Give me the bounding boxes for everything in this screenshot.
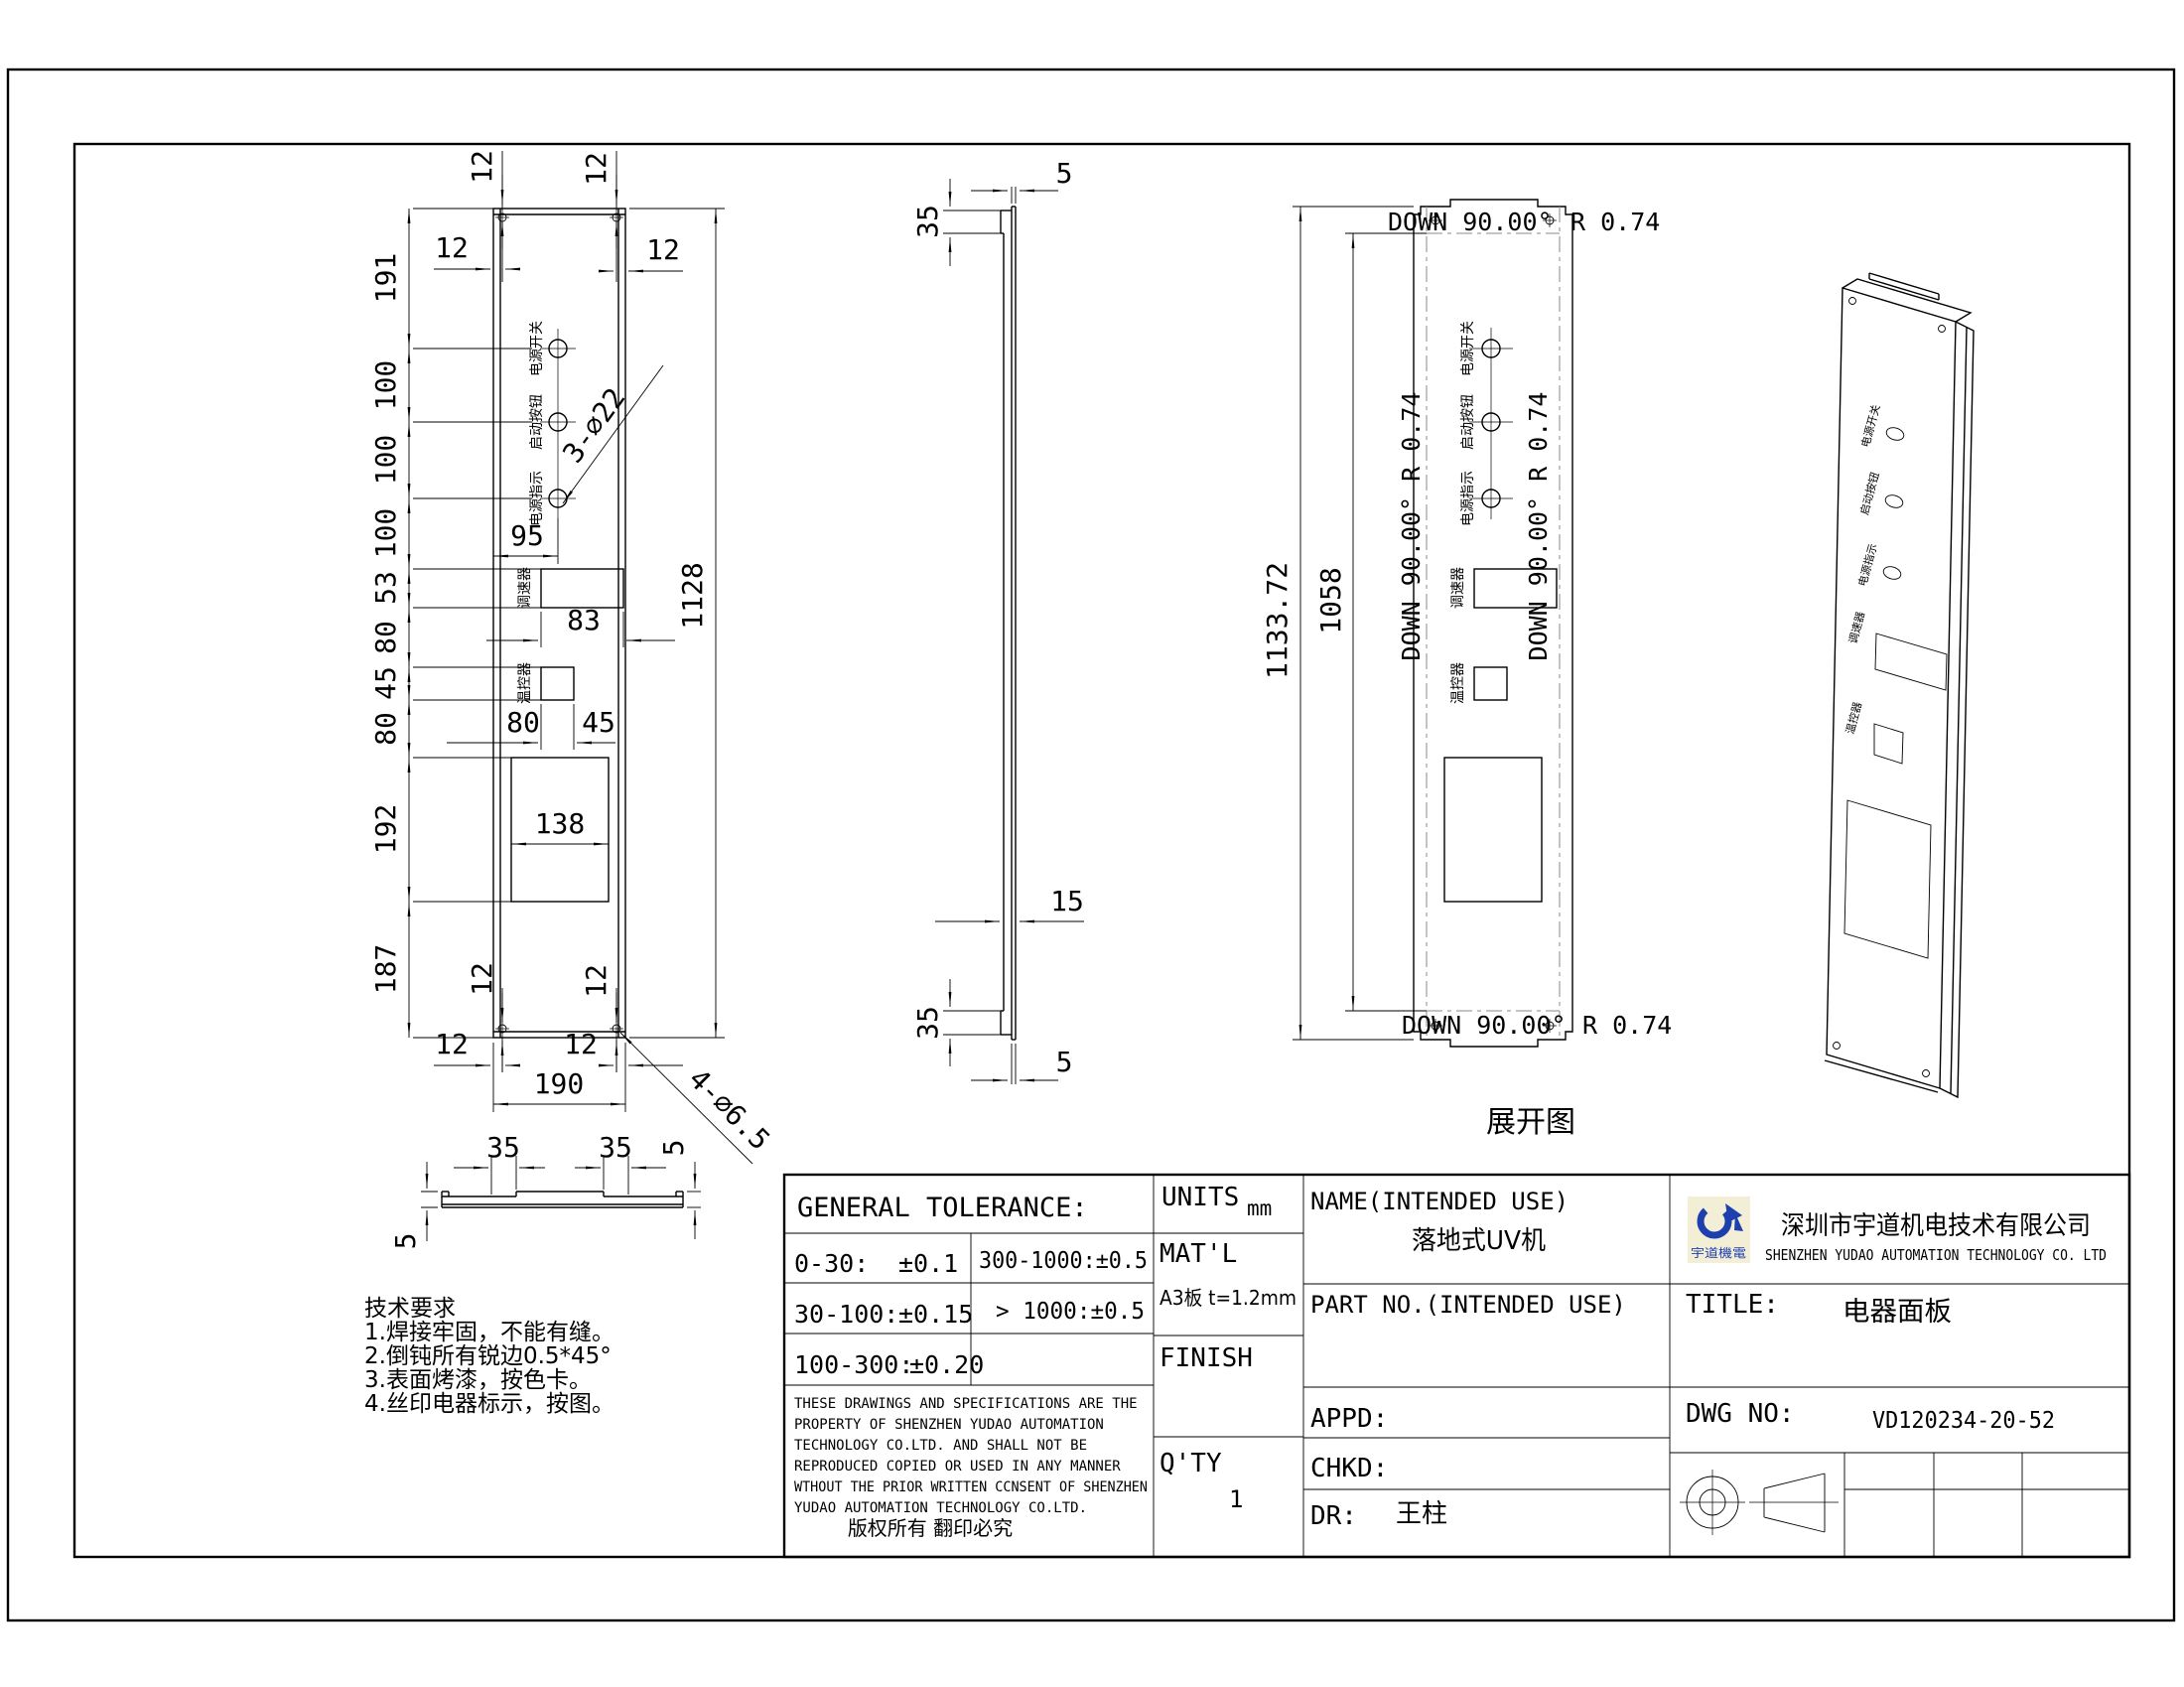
bottom-view: 35 35 5 5 [389, 1131, 701, 1249]
dim-label: 1058 [1314, 567, 1347, 633]
dim-label: 138 [535, 807, 586, 840]
dim-label: 80 [369, 712, 402, 746]
general-tolerance-heading: GENERAL TOLERANCE: [797, 1193, 1088, 1223]
dim-label: 187 [369, 944, 402, 995]
dim-label: 35 [486, 1131, 520, 1164]
disclaimer-line: PROPERTY OF SHENZHEN YUDAO AUTOMATION [794, 1417, 1104, 1433]
title-block: GENERAL TOLERANCE: 0-30: ±0.1 300-1000:±… [784, 1175, 2129, 1557]
dim-label: 83 [567, 604, 601, 636]
dr-value: 王柱 [1396, 1499, 1447, 1529]
part-no-label: PART NO.(INTENDED USE) [1310, 1291, 1626, 1319]
dim-label: 95 [510, 519, 544, 552]
tolerance-range: 300-1000:±0.5 [979, 1248, 1148, 1274]
dim-label: 12 [435, 231, 469, 264]
disclaimer-line: REPRODUCED COPIED OR USED IN ANY MANNER [794, 1459, 1121, 1475]
flat-pattern-caption: 展开图 [1486, 1105, 1575, 1140]
disclaimer-line: THESE DRAWINGS AND SPECIFICATIONS ARE TH… [794, 1396, 1138, 1412]
tech-req-title: 技术要求 [364, 1296, 456, 1322]
tolerance-range: 0-30: [794, 1249, 869, 1278]
copyright-line: 版权所有 翻印必究 [848, 1516, 1013, 1540]
isometric-view: 电源开关 启动按钮 电源指示 调速器 温控器 [1825, 273, 1974, 1097]
hole-callout: 3-∅22 [556, 382, 631, 470]
dim-label: 100 [369, 360, 402, 411]
dim-label: 35 [911, 1006, 944, 1040]
feature-label: 启动按钮 [1460, 394, 1476, 450]
front-view: 电源开关 启动按钮 电源指示 调速器 温控器 191 100 100 [369, 150, 776, 1164]
hole-callout: 4-∅6.5 [682, 1062, 776, 1157]
dim-label: 192 [369, 804, 402, 855]
engineering-drawing-sheet: 电源开关 启动按钮 电源指示 调速器 温控器 191 100 100 [0, 0, 2184, 1687]
tolerance-range: 100-300: [794, 1350, 913, 1379]
company-logo: 宇道機電 [1688, 1196, 1750, 1263]
projection-symbol [1680, 1470, 1839, 1535]
dim-label: 12 [580, 152, 613, 186]
tolerance-value: ±0.1 [898, 1249, 958, 1278]
dim-label: 12 [466, 962, 498, 996]
name-value: 落地式UV机 [1412, 1226, 1546, 1256]
feature-label: 温控器 [1843, 700, 1864, 735]
dim-label: 190 [534, 1067, 585, 1100]
appd-label: APPD: [1310, 1404, 1388, 1434]
bend-note: DOWN 90.00° [1402, 1011, 1567, 1040]
technical-requirements: 技术要求 1.焊接牢固，不能有缝。 2.倒钝所有锐边0.5*45° 3.表面烤漆… [364, 1296, 614, 1417]
bend-radius-note: R 0.74 [1582, 1011, 1672, 1040]
dim-label: 80 [369, 621, 402, 654]
feature-label: 电源指示 [1855, 542, 1880, 588]
title-value: 电器面板 [1843, 1297, 1952, 1328]
dim-label: 5 [657, 1140, 690, 1157]
material-label: MAT'L [1160, 1239, 1237, 1269]
material-value: A3板 t=1.2mm [1160, 1286, 1297, 1310]
dim-label: 5 [389, 1233, 422, 1250]
name-label: NAME(INTENDED USE) [1310, 1188, 1569, 1215]
dim-label: 12 [435, 1028, 469, 1060]
bend-note: DOWN 90.00° [1388, 208, 1553, 236]
feature-label: 调速器 [1450, 567, 1466, 609]
feature-label: 温控器 [1450, 662, 1466, 704]
bend-note: DOWN 90.00° R 0.74 [1397, 392, 1426, 661]
dim-label: 12 [646, 233, 680, 266]
tolerance-range: > 1000:±0.5 [996, 1299, 1145, 1325]
qty-value: 1 [1229, 1485, 1243, 1513]
disclaimer-line: YUDAO AUTOMATION TECHNOLOGY CO.LTD. [794, 1500, 1087, 1516]
dr-label: DR: [1310, 1501, 1357, 1531]
dim-label: 191 [369, 253, 402, 304]
disclaimer-line: TECHNOLOGY CO.LTD. AND SHALL NOT BE [794, 1438, 1087, 1454]
company-name-en: SHENZHEN YUDAO AUTOMATION TECHNOLOGY CO.… [1765, 1246, 2107, 1264]
feature-label: 电源开关 [1858, 403, 1883, 449]
logo-text: 宇道機電 [1691, 1245, 1746, 1260]
flat-pattern-view: 电源开关 启动按钮 电源指示 调速器 温控器 DOWN 90.00° R 0.7… [1261, 200, 1672, 1140]
dim-label: 100 [369, 508, 402, 559]
tech-req-item: 4.丝印电器标示，按图。 [364, 1391, 614, 1417]
dwg-no-value: VD120234-20-52 [1872, 1408, 2055, 1434]
dim-label: 1128 [676, 562, 709, 629]
feature-label: 启动按钮 [1857, 471, 1882, 516]
dim-label: 100 [369, 435, 402, 486]
tolerance-range: 30-100: [794, 1300, 898, 1329]
tolerance-value: ±0.15 [898, 1300, 973, 1329]
dwg-no-label: DWG NO: [1686, 1399, 1795, 1429]
feature-label: 电源开关 [1460, 321, 1476, 376]
dim-label: 15 [1050, 885, 1084, 917]
company-name-cn: 深圳市宇道机电技术有限公司 [1781, 1211, 2091, 1241]
dim-label: 35 [599, 1131, 632, 1164]
dim-label: 53 [369, 571, 402, 605]
side-view: 5 35 15 35 5 [911, 157, 1084, 1084]
feature-label: 电源指示 [1460, 471, 1476, 526]
tech-req-item: 1.焊接牢固，不能有缝。 [364, 1320, 614, 1345]
tolerance-value: ±0.20 [909, 1350, 984, 1379]
dim-label: 45 [582, 706, 615, 739]
dim-label: 12 [564, 1028, 598, 1060]
feature-label: 调速器 [517, 567, 533, 609]
units-label: UNITS [1161, 1183, 1239, 1212]
dim-label: 45 [369, 666, 402, 700]
tech-req-item: 3.表面烤漆，按色卡。 [364, 1367, 592, 1393]
dim-label: 1133.72 [1261, 562, 1294, 679]
tech-req-item: 2.倒钝所有锐边0.5*45° [364, 1343, 612, 1369]
dim-label: 80 [506, 706, 540, 739]
feature-label: 温控器 [517, 662, 533, 704]
dim-label: 12 [466, 150, 498, 184]
qty-label: Q'TY [1160, 1449, 1222, 1478]
units-value: mm [1247, 1196, 1272, 1220]
drawing-canvas: 电源开关 启动按钮 电源指示 调速器 温控器 191 100 100 [0, 0, 2184, 1687]
dim-label: 35 [911, 205, 944, 238]
dim-label: 5 [1056, 157, 1073, 190]
dim-label: 12 [580, 964, 613, 998]
disclaimer-line: WTHOUT THE PRIOR WRITTEN CCNSENT OF SHEN… [794, 1479, 1148, 1495]
finish-label: FINISH [1160, 1343, 1253, 1373]
feature-label: 调速器 [1846, 610, 1867, 644]
bend-radius-note: R 0.74 [1570, 208, 1660, 236]
bend-note: DOWN 90.00° R 0.74 [1524, 392, 1553, 661]
chkd-label: CHKD: [1310, 1454, 1388, 1483]
title-label: TITLE: [1686, 1290, 1779, 1320]
dim-label: 5 [1056, 1046, 1073, 1078]
